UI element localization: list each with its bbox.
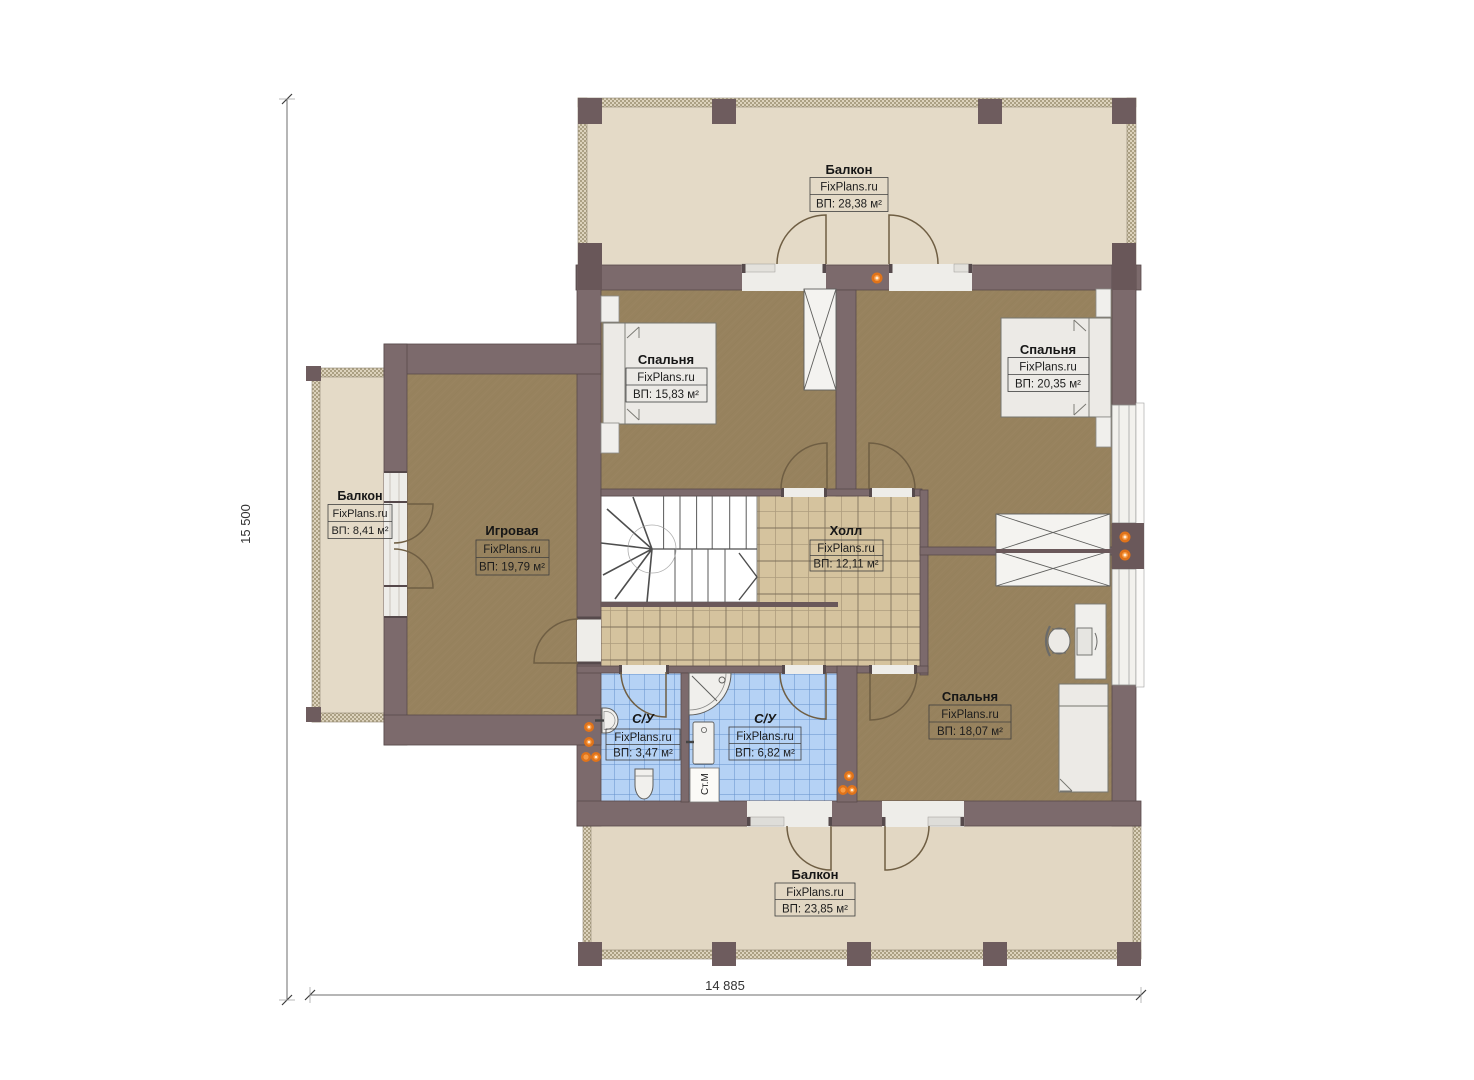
svg-text:FixPlans.ru: FixPlans.ru [332, 508, 387, 520]
svg-text:ВП: 6,82 м²: ВП: 6,82 м² [735, 748, 795, 760]
svg-text:Балкон: Балкон [792, 867, 839, 882]
svg-text:Балкон: Балкон [337, 489, 382, 503]
svg-text:С/У: С/У [632, 711, 655, 726]
svg-text:FixPlans.ru: FixPlans.ru [786, 887, 844, 899]
svg-text:ВП: 3,47 м²: ВП: 3,47 м² [613, 748, 673, 760]
svg-text:ВП: 23,85 м²: ВП: 23,85 м² [782, 904, 848, 916]
svg-text:ВП: 12,11 м²: ВП: 12,11 м² [813, 559, 878, 571]
svg-text:Холл: Холл [830, 523, 863, 538]
svg-text:ВП: 20,35 м²: ВП: 20,35 м² [1015, 379, 1081, 391]
svg-text:FixPlans.ru: FixPlans.ru [1019, 362, 1077, 374]
svg-text:Спальня: Спальня [638, 352, 694, 367]
svg-text:Спальня: Спальня [942, 689, 998, 704]
svg-text:FixPlans.ru: FixPlans.ru [483, 544, 541, 556]
svg-text:Ст.М: Ст.М [700, 773, 711, 795]
svg-text:ВП: 18,07 м²: ВП: 18,07 м² [937, 726, 1003, 738]
svg-text:FixPlans.ru: FixPlans.ru [637, 372, 695, 384]
svg-text:FixPlans.ru: FixPlans.ru [820, 182, 878, 194]
svg-text:Балкон: Балкон [826, 162, 873, 177]
svg-text:FixPlans.ru: FixPlans.ru [614, 732, 672, 744]
svg-text:ВП: 19,79 м²: ВП: 19,79 м² [479, 562, 545, 574]
svg-text:FixPlans.ru: FixPlans.ru [817, 543, 875, 555]
svg-text:ВП: 28,38 м²: ВП: 28,38 м² [816, 199, 882, 211]
svg-text:Спальня: Спальня [1020, 342, 1076, 357]
svg-text:ВП: 8,41 м²: ВП: 8,41 м² [331, 525, 388, 537]
svg-text:FixPlans.ru: FixPlans.ru [736, 731, 794, 743]
svg-text:С/У: С/У [754, 711, 777, 726]
svg-text:FixPlans.ru: FixPlans.ru [941, 709, 999, 721]
svg-text:Игровая: Игровая [485, 523, 538, 538]
svg-text:ВП: 15,83 м²: ВП: 15,83 м² [633, 389, 699, 401]
svg-text:15 500: 15 500 [238, 504, 253, 544]
svg-text:14 885: 14 885 [705, 978, 745, 993]
